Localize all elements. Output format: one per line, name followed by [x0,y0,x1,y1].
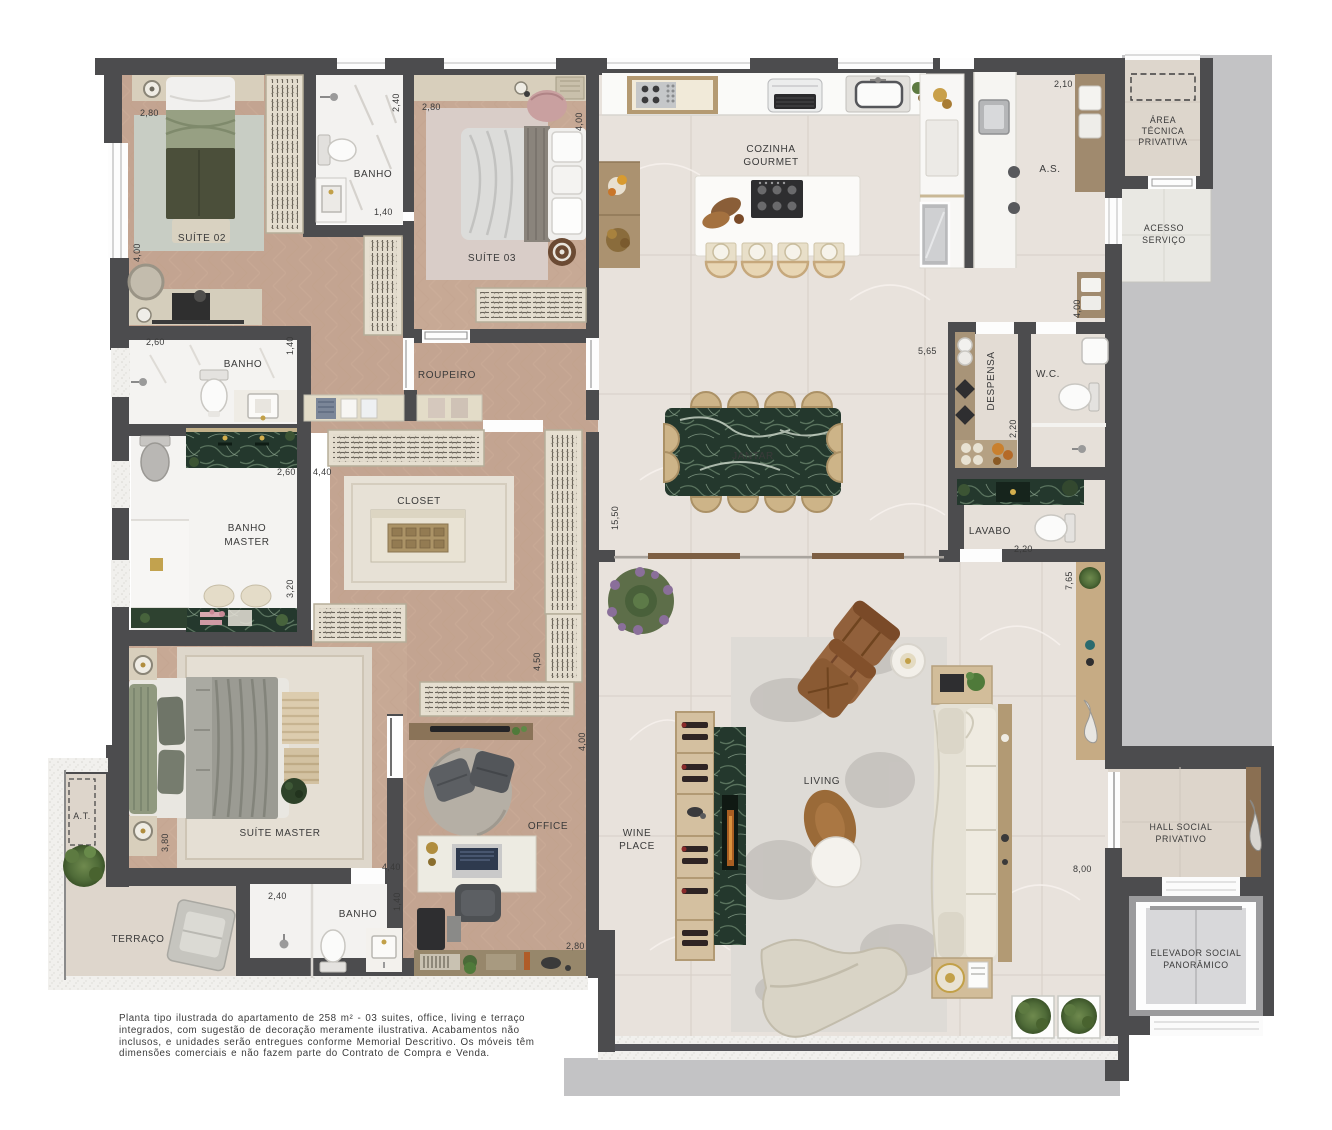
svg-text:ÁREA: ÁREA [1150,115,1176,125]
svg-text:4,40: 4,40 [382,862,401,872]
svg-text:4,00: 4,00 [1072,299,1082,318]
svg-text:PRIVATIVA: PRIVATIVA [1138,137,1187,147]
svg-text:DESPENSA: DESPENSA [986,351,997,410]
svg-text:A.S.: A.S. [1039,164,1060,175]
svg-text:TERRAÇO: TERRAÇO [111,934,164,945]
svg-text:SUÍTE 03: SUÍTE 03 [468,251,516,264]
svg-text:2,20: 2,20 [1008,419,1018,438]
svg-text:4,00: 4,00 [577,732,587,751]
svg-text:2,80: 2,80 [140,108,159,118]
svg-text:4,50: 4,50 [532,652,542,671]
svg-text:1,40: 1,40 [285,336,295,355]
svg-text:GOURMET: GOURMET [743,157,798,168]
svg-text:Planta tipo ilustrada do apart: Planta tipo ilustrada do apartamento de … [119,1013,525,1024]
svg-text:LIVING: LIVING [804,776,840,787]
svg-text:JANTAR: JANTAR [732,451,774,462]
svg-text:BANHO: BANHO [339,909,378,920]
svg-text:PLACE: PLACE [619,841,655,852]
svg-text:7,65: 7,65 [1064,571,1074,590]
svg-text:W.C.: W.C. [1036,369,1060,380]
svg-text:SERVIÇO: SERVIÇO [1142,235,1186,245]
svg-text:PANORÂMICO: PANORÂMICO [1163,960,1228,970]
svg-text:TÉCNICA: TÉCNICA [1142,126,1185,136]
svg-text:COZINHA: COZINHA [746,144,795,155]
svg-text:2,40: 2,40 [268,891,287,901]
svg-text:4,00: 4,00 [574,112,584,131]
svg-text:5,65: 5,65 [918,346,937,356]
svg-text:inclusos, e unidades serão ent: inclusos, e unidades serão entregues con… [119,1037,534,1048]
svg-text:A.T.: A.T. [73,811,91,821]
svg-text:CLOSET: CLOSET [397,496,441,507]
svg-text:3,20: 3,20 [285,579,295,598]
svg-text:OFFICE: OFFICE [528,821,568,832]
svg-text:4,40: 4,40 [313,467,332,477]
svg-text:PRIVATIVO: PRIVATIVO [1155,834,1206,844]
svg-text:BANHO: BANHO [354,169,393,180]
svg-text:1,40: 1,40 [374,207,393,217]
svg-text:WINE: WINE [623,828,652,839]
svg-text:3,80: 3,80 [160,833,170,852]
svg-text:4,00: 4,00 [132,243,142,262]
svg-text:SUÍTE 02: SUÍTE 02 [178,231,226,244]
svg-text:SUÍTE MASTER: SUÍTE MASTER [239,826,320,839]
svg-text:dimensões comerciais e não faz: dimensões comerciais e não fazem parte d… [119,1048,490,1059]
svg-text:BANHO: BANHO [224,359,263,370]
svg-text:2,10: 2,10 [1054,79,1073,89]
svg-text:2,60: 2,60 [277,467,296,477]
svg-text:2,80: 2,80 [566,941,585,951]
svg-text:ELEVADOR SOCIAL: ELEVADOR SOCIAL [1151,948,1242,958]
svg-text:integrados, com sugestão de de: integrados, com sugestão de decoração me… [119,1025,520,1036]
svg-text:2,60: 2,60 [146,337,165,347]
svg-text:2,80: 2,80 [422,102,441,112]
svg-text:2,20: 2,20 [1014,544,1033,554]
svg-text:BANHO: BANHO [228,523,267,534]
svg-text:15,50: 15,50 [610,506,620,530]
svg-text:8,00: 8,00 [1073,864,1092,874]
svg-text:1,40: 1,40 [392,892,402,911]
svg-text:LAVABO: LAVABO [969,526,1011,537]
svg-text:ACESSO: ACESSO [1144,223,1184,233]
svg-text:ROUPEIRO: ROUPEIRO [418,370,476,381]
svg-text:MASTER: MASTER [224,537,269,548]
svg-text:HALL SOCIAL: HALL SOCIAL [1150,822,1213,832]
svg-text:2,40: 2,40 [391,93,401,112]
